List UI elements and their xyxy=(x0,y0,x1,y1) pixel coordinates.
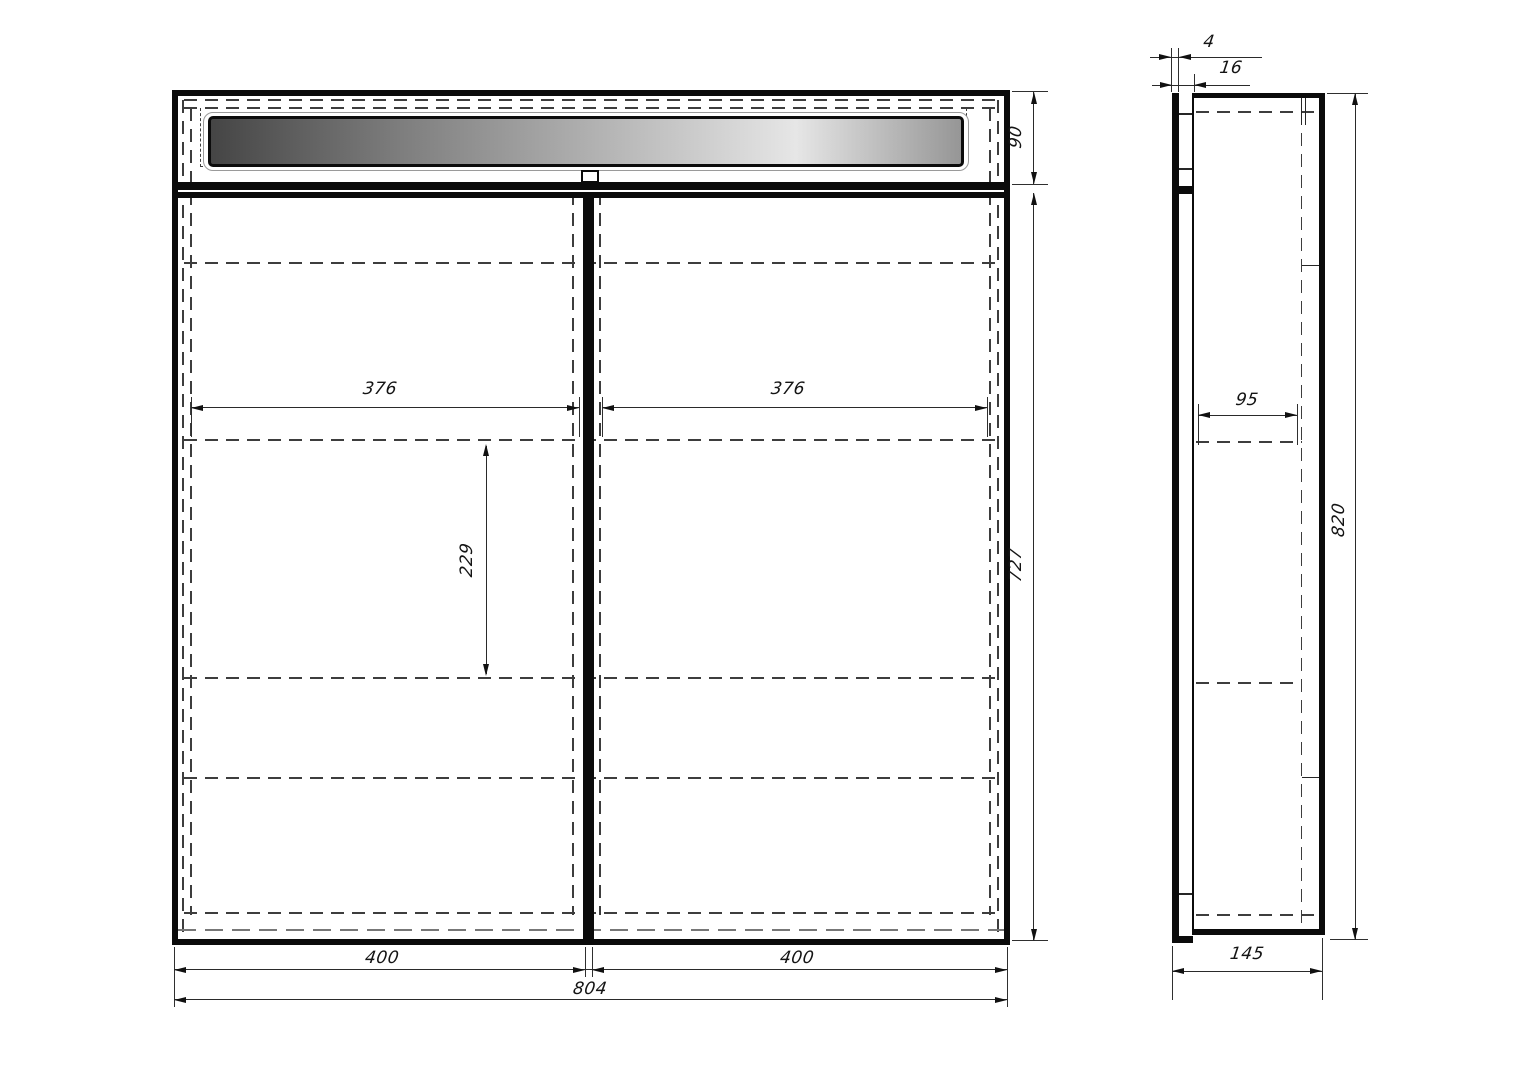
side-carcass xyxy=(1192,93,1325,935)
arrowhead xyxy=(975,405,987,411)
dimension-line xyxy=(191,407,579,408)
arrowhead xyxy=(1159,54,1171,60)
arrowhead xyxy=(1352,93,1358,105)
arrowhead xyxy=(1031,172,1037,184)
dim-inner-width-right: 376 xyxy=(757,379,820,399)
extension-line xyxy=(585,947,586,977)
arrowhead xyxy=(1285,412,1297,418)
center-door-divider xyxy=(583,192,594,945)
dimension-line xyxy=(1198,415,1297,416)
arrowhead xyxy=(1160,82,1172,88)
dim-overall-width: 804 xyxy=(559,979,622,999)
dim-shelf-gap: 229 xyxy=(457,529,477,592)
technical-drawing-canvas: 90 727 376 376 229 400 xyxy=(0,0,1525,1080)
hinge-line xyxy=(1179,893,1192,895)
arrowhead xyxy=(1031,193,1037,205)
arrowhead xyxy=(191,405,203,411)
side-divider-block xyxy=(1179,186,1193,194)
arrowhead xyxy=(483,444,489,456)
arrowhead xyxy=(174,967,186,973)
arrowhead xyxy=(592,967,604,973)
arrowhead xyxy=(995,967,1007,973)
extension-line xyxy=(1330,939,1368,940)
side-door-panel xyxy=(1172,93,1179,943)
extension-line xyxy=(1198,404,1199,445)
dimension-line xyxy=(1355,93,1356,940)
extension-line xyxy=(1327,93,1368,94)
extension-line xyxy=(191,397,192,437)
dimension-line xyxy=(174,999,1007,1000)
arrowhead xyxy=(602,405,614,411)
dim-inner-width-left: 376 xyxy=(349,379,412,399)
dimension-line xyxy=(1033,92,1034,184)
arrowhead xyxy=(1179,54,1191,60)
dimension-line xyxy=(174,969,1007,970)
hinge-line xyxy=(1179,113,1192,115)
dimension-line xyxy=(486,446,487,674)
extension-line xyxy=(602,397,603,437)
dimension-line xyxy=(1033,193,1034,941)
arrowhead xyxy=(1310,968,1322,974)
extension-line xyxy=(592,947,593,977)
arrowhead xyxy=(567,405,579,411)
arrowhead xyxy=(1031,92,1037,104)
dimension-line xyxy=(1172,971,1322,972)
hinge-line xyxy=(1179,168,1192,170)
arrowhead xyxy=(1198,412,1210,418)
dim-shelf-depth: 95 xyxy=(1216,390,1279,410)
arrowhead xyxy=(1031,929,1037,941)
arrowhead xyxy=(1194,82,1206,88)
dim-door-width-right: 400 xyxy=(766,948,829,968)
extension-line xyxy=(1012,184,1048,185)
arrowhead xyxy=(483,664,489,676)
arrowhead xyxy=(995,997,1007,1003)
dim-overall-height: 820 xyxy=(1329,489,1349,552)
dim-door-thickness: 4 xyxy=(1193,32,1226,52)
dim-door-height: 727 xyxy=(1006,534,1026,597)
dim-front-depth: 16 xyxy=(1215,58,1248,78)
dim-door-width-left: 400 xyxy=(351,948,414,968)
dimension-line xyxy=(602,407,987,408)
arrowhead xyxy=(1352,928,1358,940)
extension-line xyxy=(987,397,988,437)
extension-line xyxy=(1297,404,1298,445)
switch-notch xyxy=(581,170,599,183)
dim-light-height: 90 xyxy=(1006,106,1026,169)
extension-line xyxy=(579,397,580,437)
arrowhead xyxy=(174,997,186,1003)
arrowhead xyxy=(573,967,585,973)
dim-overall-depth: 145 xyxy=(1216,944,1279,964)
light-strip xyxy=(208,116,964,167)
side-door-bottom-block xyxy=(1179,936,1193,943)
arrowhead xyxy=(1172,968,1184,974)
